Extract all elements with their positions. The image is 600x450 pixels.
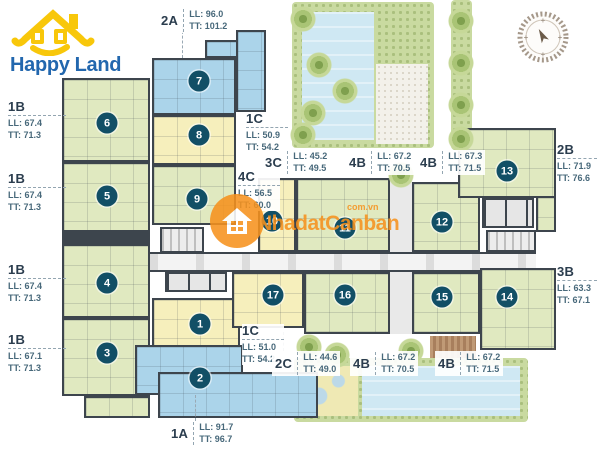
palm-tree-icon [290,122,316,148]
unit-area-7-step [205,40,239,58]
happyland-logo-icon [8,4,100,61]
palm-tree-icon [306,52,332,78]
unit-badge-3[interactable]: 3 [97,343,118,364]
unit-badge-2[interactable]: 2 [190,368,211,389]
unit-area-2-wing [158,372,318,418]
unit-area-values: LL: 96.0TT: 101.2 [183,9,227,32]
unit-type-label-2c-13: 2CLL: 44.6TT: 49.0 [272,351,340,376]
unit-type-label-1b-2: 1BLL: 67.4TT: 71.3 [8,172,66,213]
unit-badge-10[interactable]: 10 [262,211,283,232]
unit-type-label-3c-7: 3CLL: 45.2TT: 49.5 [262,150,330,175]
leader-line-1a [195,395,196,421]
svg-text:+: + [541,50,546,59]
unit-type-label-4b-9: 4BLL: 67.3TT: 71.5 [417,150,485,175]
unit-type-name: 1B [8,333,66,349]
unit-badge-14[interactable]: 14 [497,287,518,308]
unit-badge-1[interactable]: 1 [190,314,211,335]
unit-type-label-1b-1: 1BLL: 67.4TT: 71.3 [8,100,66,141]
unit-area-values: LL: 67.4TT: 71.3 [8,281,66,304]
stairwell [160,227,204,253]
unit-area-values: LL: 91.7TT: 96.7 [193,422,233,445]
svg-text:+: + [524,33,529,42]
service-gap [390,272,412,334]
unit-type-name: 1C [242,324,284,340]
unit-area-values: LL: 63.3TT: 67.1 [557,283,597,306]
palm-tree-icon [448,92,474,118]
unit-type-label-1c-5: 1CLL: 50.9TT: 54.2 [246,112,288,153]
unit-type-name: 1C [246,112,288,128]
unit-badge-15[interactable]: 15 [432,287,453,308]
unit-type-label-4b-15: 4BLL: 67.2TT: 71.5 [435,351,503,376]
unit-area-values: LL: 56.5TT: 60.0 [238,188,280,211]
unit-type-label-4c-6: 4CLL: 56.5TT: 60.0 [238,170,280,211]
unit-type-name: 1B [8,172,66,188]
structural-wall [62,232,150,244]
unit-type-name: 1B [8,100,66,116]
palm-tree-icon [332,78,358,104]
unit-badge-4[interactable]: 4 [97,273,118,294]
svg-text:+: + [541,16,546,25]
unit-type-label-4b-8: 4BLL: 67.2TT: 70.5 [346,150,414,175]
unit-area-values: LL: 71.9TT: 76.6 [557,161,597,184]
unit-area-values: LL: 67.2TT: 70.5 [375,352,415,375]
corridor [150,252,536,272]
unit-area-14 [480,268,556,350]
unit-area-values: LL: 67.4TT: 71.3 [8,118,66,141]
palm-tree-icon [448,126,474,152]
unit-area-values: LL: 67.2TT: 70.5 [371,151,411,174]
unit-area-13-extension [536,196,556,232]
palm-tree-icon [448,8,474,34]
unit-type-name: 4B [420,156,442,169]
unit-badge-5[interactable]: 5 [97,186,118,207]
unit-area-values: LL: 67.3TT: 71.5 [442,151,482,174]
compass-icon: + + + + [512,6,574,73]
unit-type-label-2a-0: 2ALL: 96.0TT: 101.2 [158,8,230,33]
elevator-bank-left [165,272,227,292]
unit-type-name: 1A [171,427,193,440]
unit-badge-7[interactable]: 7 [189,71,210,92]
unit-type-name: 2A [161,14,183,27]
unit-type-name: 2B [557,143,597,159]
brand-word-land: Land [75,54,122,77]
unit-area-7-wing [236,30,266,112]
palm-tree-icon [448,50,474,76]
unit-area-3-extension [84,396,150,418]
unit-badge-13[interactable]: 13 [497,161,518,182]
unit-badge-17[interactable]: 17 [263,285,284,306]
unit-badge-11[interactable]: 11 [335,218,356,239]
unit-area-values: LL: 67.1TT: 71.3 [8,351,66,374]
pool-deck-paving [376,64,428,144]
unit-type-label-1a-16: 1ALL: 91.7TT: 96.7 [168,421,236,446]
unit-area-values: LL: 67.4TT: 71.3 [8,190,66,213]
unit-badge-6[interactable]: 6 [97,113,118,134]
palm-tree-icon [290,6,316,32]
elevator-bank-right [482,198,534,228]
unit-type-name: 1B [8,263,66,279]
unit-type-name: 4B [438,357,460,370]
svg-text:+: + [558,33,563,42]
brand-word-happy: Happy [10,54,70,77]
unit-type-label-4b-14: 4BLL: 67.2TT: 70.5 [350,351,418,376]
unit-area-values: LL: 45.2TT: 49.5 [287,151,327,174]
unit-area-11 [296,178,390,252]
unit-type-name: 3C [265,156,287,169]
unit-badge-8[interactable]: 8 [189,125,210,146]
unit-type-label-3b-11: 3BLL: 63.3TT: 67.1 [557,265,597,306]
unit-badge-12[interactable]: 12 [432,212,453,233]
unit-type-name: 2C [275,357,297,370]
unit-type-name: 4B [353,357,375,370]
unit-type-label-1b-4: 1BLL: 67.1TT: 71.3 [8,333,66,374]
unit-area-values: LL: 44.6TT: 49.0 [297,352,337,375]
unit-type-label-2b-10: 2BLL: 71.9TT: 76.6 [557,143,597,184]
brand-name: HappyLand [10,54,121,77]
unit-badge-9[interactable]: 9 [187,189,208,210]
stairwell-right [486,230,536,252]
unit-type-label-1b-3: 1BLL: 67.4TT: 71.3 [8,263,66,304]
unit-type-name: 3B [557,265,597,281]
unit-type-name: 4B [349,156,371,169]
service-gap [390,178,412,252]
floor-plan: 1234567891011121314151617 2ALL: 96.0TT: … [0,0,600,450]
unit-area-values: LL: 67.2TT: 71.5 [460,352,500,375]
unit-badge-16[interactable]: 16 [335,285,356,306]
